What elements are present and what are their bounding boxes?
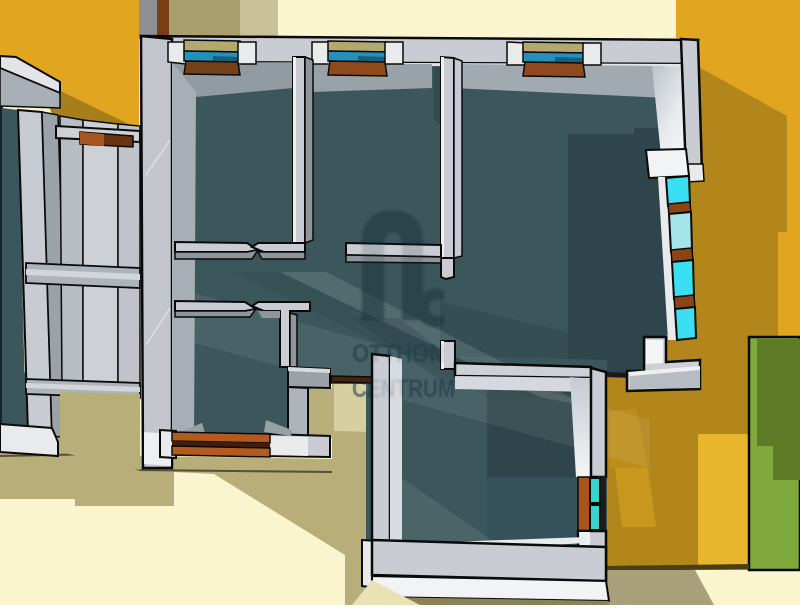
svg-text:CENTRUM: CENTRUM	[352, 375, 455, 403]
svg-text:OTTHON: OTTHON	[352, 340, 445, 368]
